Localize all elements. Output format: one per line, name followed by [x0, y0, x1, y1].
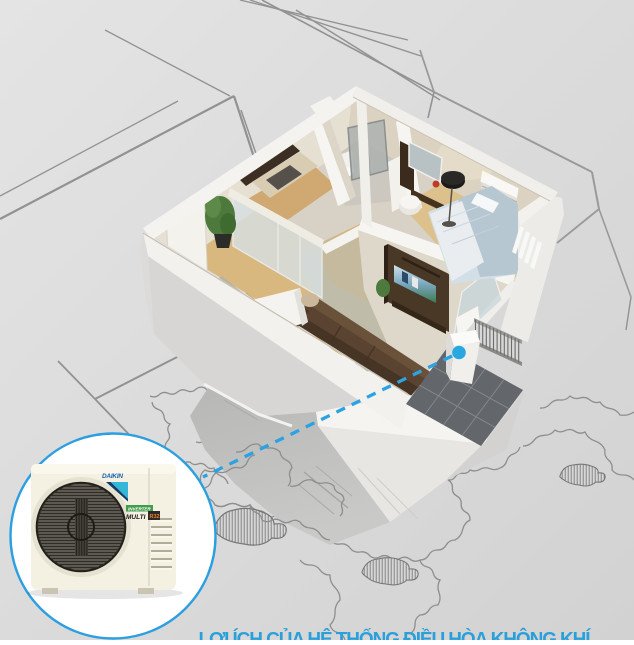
- svg-text:R32: R32: [150, 514, 160, 520]
- svg-text:MULTI: MULTI: [126, 514, 146, 521]
- svg-text:DAIKIN: DAIKIN: [102, 473, 123, 480]
- svg-text:INVERTER: INVERTER: [128, 507, 151, 512]
- svg-text:LỢI ÍCH CỦA HỆ THỐNG ĐIỀU HÒA: LỢI ÍCH CỦA HỆ THỐNG ĐIỀU HÒA KHÔNG KHÍ: [199, 629, 592, 641]
